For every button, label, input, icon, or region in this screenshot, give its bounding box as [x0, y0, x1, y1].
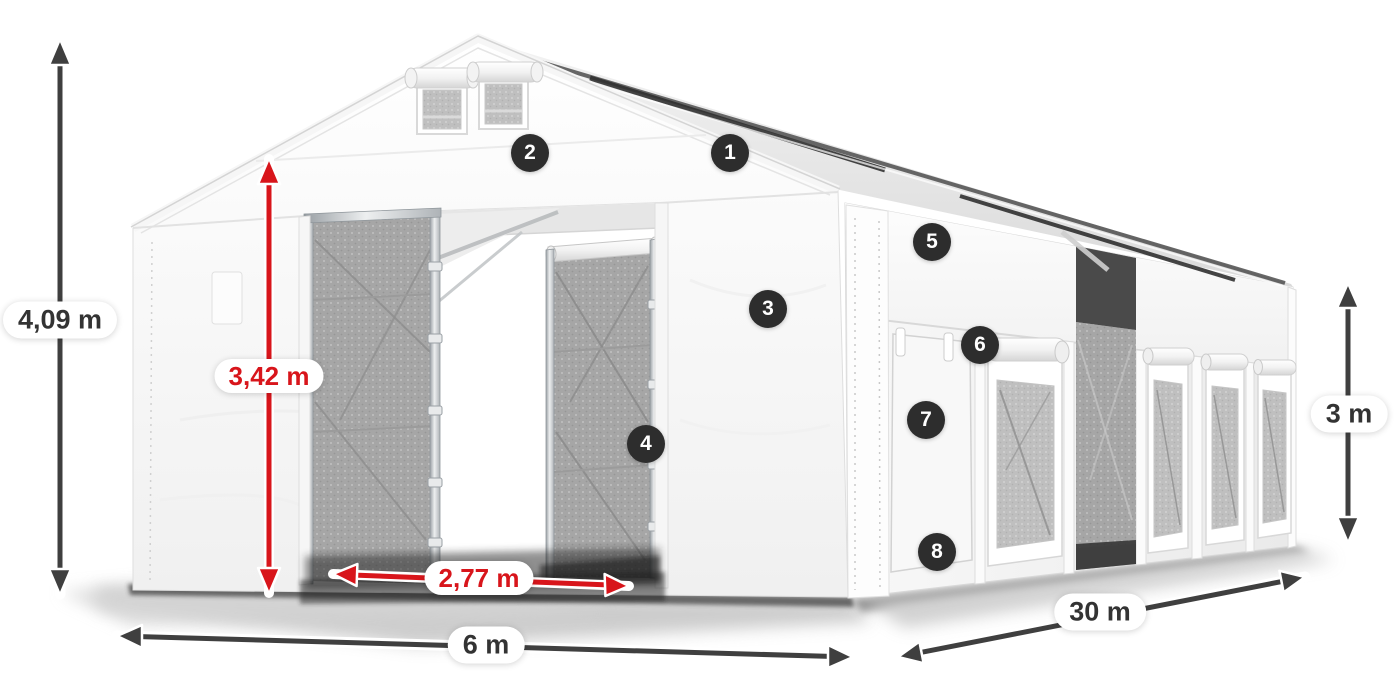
- callout-badge-2: 2: [511, 134, 549, 172]
- dim-label-length: 30 m: [1054, 594, 1146, 631]
- flap-loop: [944, 333, 953, 361]
- dim-label-entrance-width: 2,77 m: [425, 561, 534, 595]
- side-window-2: [1143, 348, 1194, 553]
- callout-badge-5: 5: [913, 223, 951, 261]
- callout-badge-4: 4: [627, 425, 665, 463]
- callout-badge-1: 1: [711, 134, 749, 172]
- front-entrance: [299, 203, 668, 604]
- side-window-1: [983, 338, 1069, 566]
- flap-loop: [896, 328, 905, 356]
- interior-mesh-left: [304, 208, 442, 585]
- tent-drawing: [0, 0, 1400, 700]
- side-window-4: [1254, 360, 1297, 539]
- tent-dimension-illustration: 4,09 m 3,42 m 2,77 m 6 m 30 m 3 m 1 2 3 …: [0, 0, 1400, 700]
- vent-roll: [469, 62, 541, 82]
- callout-badge-7: 7: [907, 401, 945, 439]
- side-window-3: [1201, 354, 1248, 545]
- dim-label-entrance-height: 3,42 m: [215, 359, 324, 393]
- callout-badge-8: 8: [918, 533, 956, 571]
- interior-partition: [546, 237, 661, 579]
- callout-badge-3: 3: [749, 290, 787, 328]
- corner-pillar: [846, 205, 889, 598]
- dim-label-width: 6 m: [448, 627, 525, 664]
- callout-badge-6: 6: [961, 326, 999, 364]
- dim-label-side-height: 3 m: [1311, 396, 1388, 433]
- tent-body: [131, 36, 1296, 604]
- dim-label-total-height: 4,09 m: [3, 302, 117, 339]
